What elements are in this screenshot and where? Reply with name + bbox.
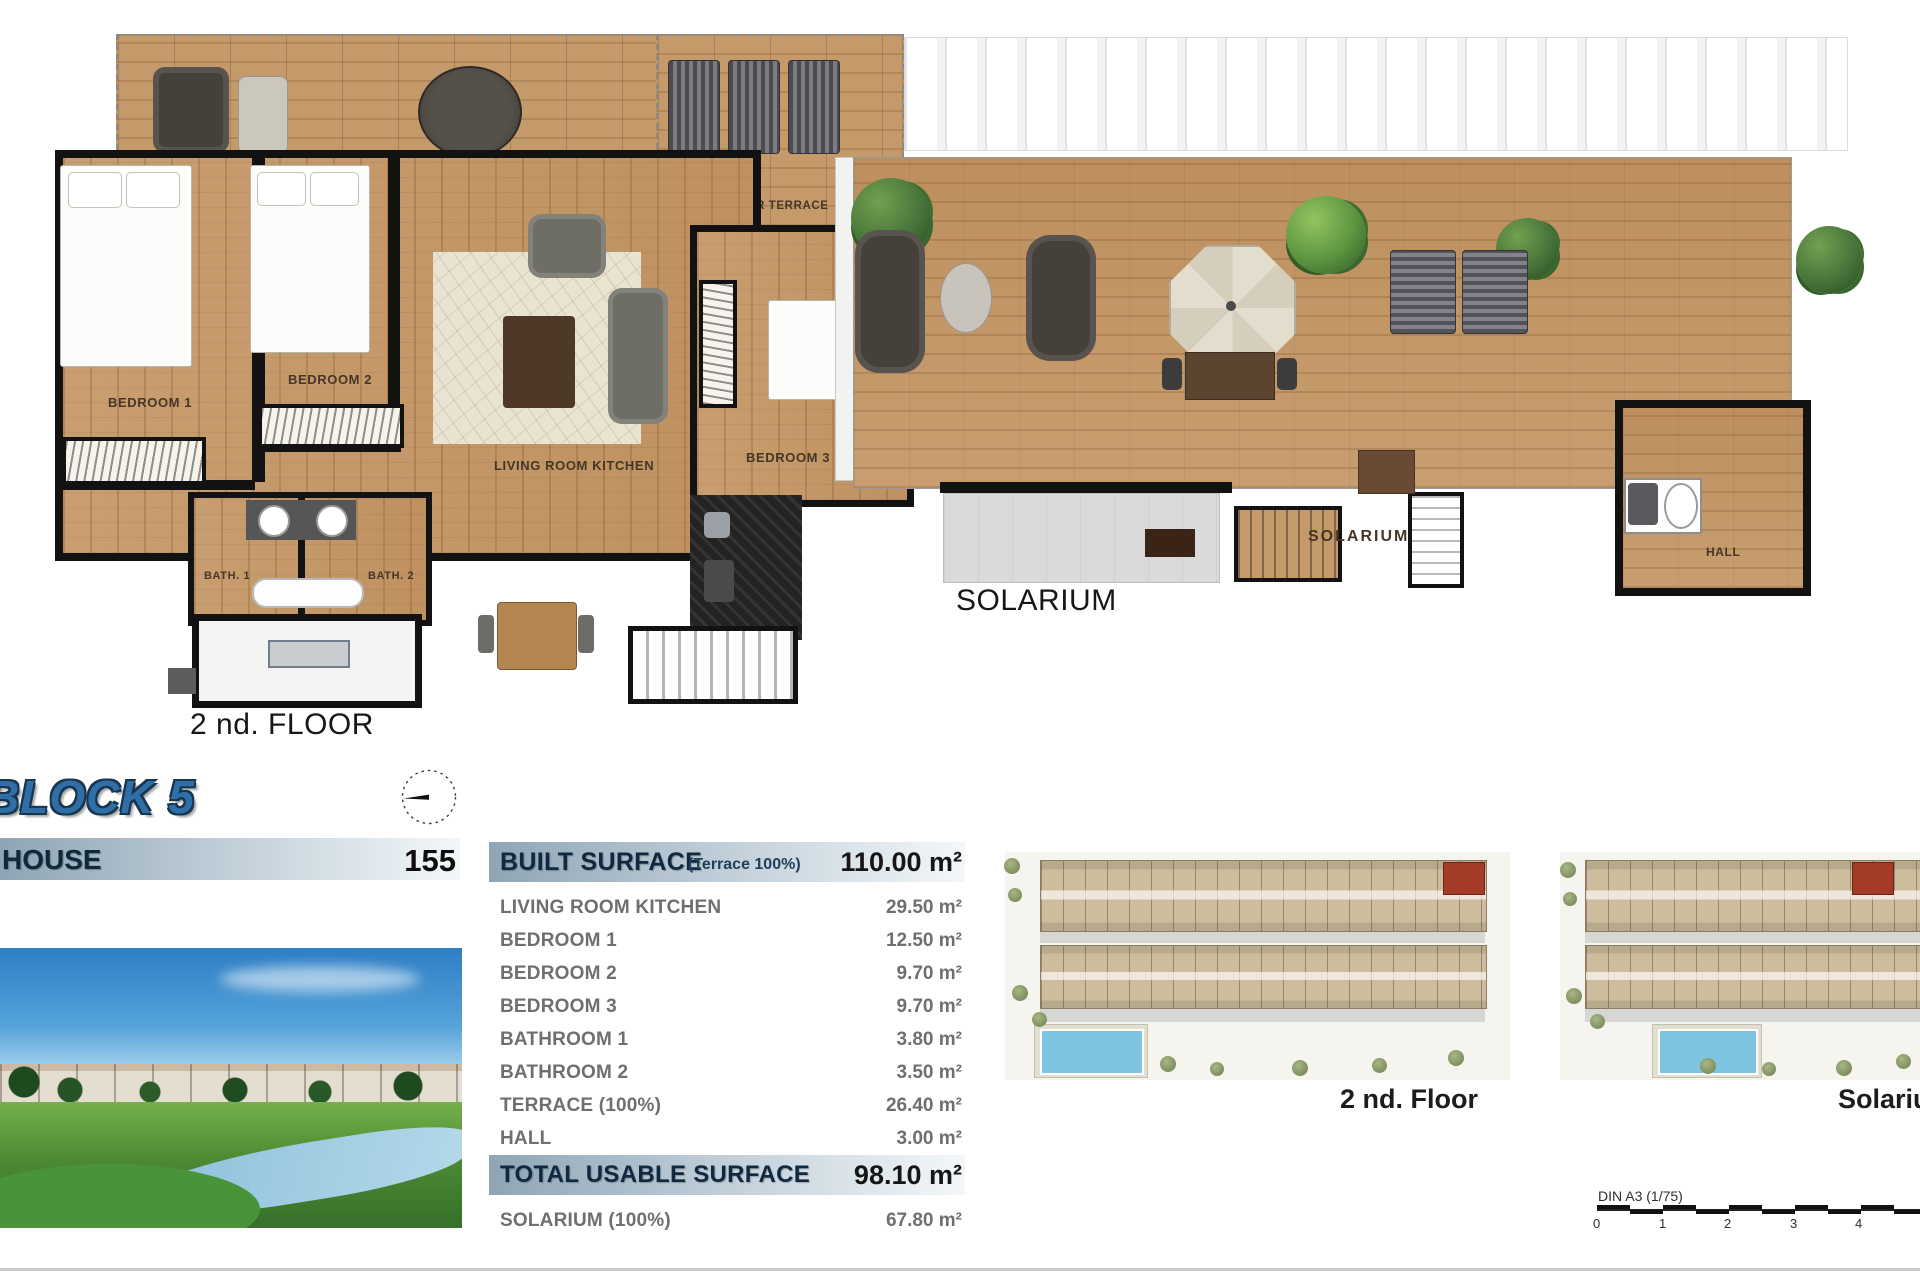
dining-chair [578,615,594,653]
scale-tick: 4 [1855,1216,1862,1231]
bed-pillow [310,172,359,206]
photo-trees [0,1044,462,1110]
sofa [608,288,668,424]
terrace-table [238,76,288,154]
table-row-label: BATHROOM 2 [500,1062,628,1084]
kitchen-sink [704,512,730,538]
kitchenette-basin [1664,483,1698,529]
laundry-rack [268,640,350,668]
scale-tick: 3 [1790,1216,1797,1231]
site-tree [1008,888,1022,902]
table-row-value: 12.50 m² [762,930,962,952]
site-tree [1563,892,1577,906]
room-label-bedroom1: BEDROOM 1 [108,395,192,410]
room-label-solarium: SOLARIUM [1308,528,1409,546]
building-row [1585,945,1920,1009]
site-tree [1896,1054,1911,1069]
sun-lounger [788,60,840,154]
site-tree [1560,862,1576,878]
room-label-living: LIVING ROOM KITCHEN [494,458,654,473]
site-tree [1590,1014,1605,1029]
scale-tick: 1 [1659,1216,1666,1231]
building-row [1040,860,1487,932]
site-tree [1004,858,1020,874]
table-row-label: LIVING ROOM KITCHEN [500,897,721,919]
compass-icon [400,768,458,826]
table-total-value: 98.10 m² [762,1160,962,1191]
wall [940,482,1232,493]
site-tree [1566,988,1582,1004]
block-title: BLOCK 5 [0,770,195,824]
table-row-label: HALL [500,1128,551,1150]
room-label-bedroom3: BEDROOM 3 [746,450,830,465]
site-tree [1012,985,1028,1001]
doormat [1145,529,1195,557]
plan-caption-2nd-floor: 2 nd. FLOOR [190,708,374,742]
site-tree [1836,1060,1852,1076]
bed-pillow [68,172,122,208]
dining-chair [478,615,494,653]
house-number: 155 [404,843,456,879]
closet [699,280,737,408]
road [1585,932,1920,943]
table-row-label: BEDROOM 1 [500,930,617,952]
room-label-hall: HALL [1706,545,1740,559]
table-header-label: BUILT SURFACE [500,848,702,877]
site-tree [1448,1050,1464,1066]
road [1040,932,1485,943]
road [1040,1009,1485,1022]
highlight-unit [1443,862,1485,895]
closet [258,404,404,448]
dining-table [497,602,577,670]
house-label: HOUSE [2,844,102,876]
page-bottom-border [0,1268,1920,1271]
property-photo [0,948,462,1228]
hall-staircase [1408,492,1464,588]
site-tree [1032,1012,1047,1027]
patio-chair [1162,358,1182,390]
table-row-label: BEDROOM 3 [500,996,617,1018]
closet [62,437,206,485]
building-row [1040,945,1487,1009]
room-label-bath1: BATH. 1 [204,570,250,582]
bathroom-sink [258,505,290,537]
table-row-value: 9.70 m² [762,996,962,1018]
site-plan-caption-2nd-floor: 2 nd. Floor [1340,1084,1478,1115]
sun-lounger [728,60,780,154]
room-label-bath2: BATH. 2 [368,570,414,582]
pergola-slats [904,37,1848,151]
page: { "block_title": "BLOCK 5", "house_bar":… [0,0,1920,1280]
bed-pillow [257,172,306,206]
table-row-value: 29.50 m² [762,897,962,919]
outdoor-sofa [855,230,925,373]
kitchenette-appliance [1628,483,1658,525]
fire-table [1358,450,1415,494]
scale-tick: 2 [1724,1216,1731,1231]
bathtub [252,578,364,608]
sun-lounger [1390,250,1456,334]
scale-bar-line [1597,1205,1920,1214]
site-tree [1700,1058,1716,1074]
highlight-unit [1852,862,1894,895]
scale-label: DIN A3 (1/75) [1598,1188,1683,1204]
table-solarium-label: SOLARIUM (100%) [500,1210,671,1232]
site-plan-caption-solarium: Solarium [1838,1084,1920,1115]
site-tree [1372,1058,1387,1073]
sun-lounger [668,60,720,154]
table-row-value: 3.00 m² [762,1128,962,1150]
site-tree [1762,1062,1776,1076]
patio-table [1185,352,1275,400]
armchair [528,214,606,278]
table-header-value: 110.00 m² [762,847,962,878]
photo-cloud [220,966,420,992]
side-table [940,263,992,333]
road [1585,1009,1920,1022]
plan-caption-solarium: SOLARIUM [956,584,1117,618]
outdoor-sofa [1026,235,1096,361]
staircase [628,626,798,704]
terrace-sofa [153,67,229,153]
room-label-bedroom2: BEDROOM 2 [288,372,372,387]
table-row-value: 3.50 m² [762,1062,962,1084]
tree [1286,196,1366,274]
tree [1796,226,1862,294]
coffee-table [503,316,575,408]
table-row-value: 9.70 m² [762,963,962,985]
table-row-label: TERRACE (100%) [500,1095,661,1117]
scale-tick: 0 [1593,1216,1600,1231]
table-solarium-value: 67.80 m² [762,1210,962,1232]
bed-pillow [126,172,180,208]
table-row-value: 3.80 m² [762,1029,962,1051]
patio-chair [1277,358,1297,390]
balcony-pillar [168,668,196,694]
terrace-round-table [418,66,522,158]
house-bar: HOUSE 155 [0,838,460,880]
parasol-pole [1226,301,1236,311]
table-row-label: BEDROOM 2 [500,963,617,985]
site-tree [1210,1062,1224,1076]
site-tree [1160,1056,1176,1072]
pool [1040,1029,1144,1075]
bathroom-sink [316,505,348,537]
table-row-label: BATHROOM 1 [500,1029,628,1051]
table-row-value: 26.40 m² [762,1095,962,1117]
sun-lounger [1462,250,1528,334]
stove [704,560,734,602]
site-tree [1292,1060,1308,1076]
